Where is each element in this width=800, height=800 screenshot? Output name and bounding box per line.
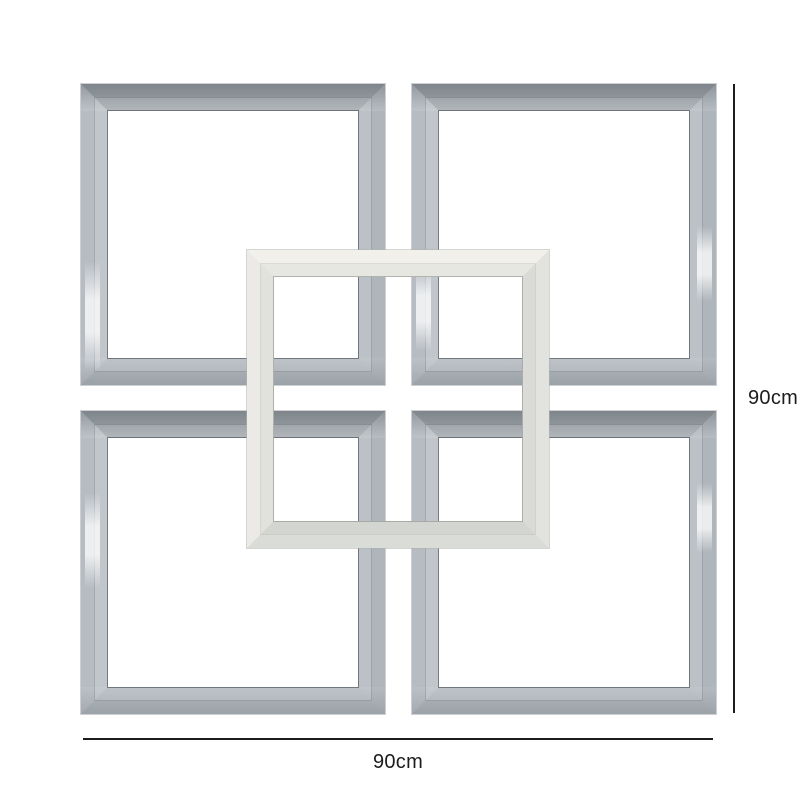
mirror-bevel	[261, 264, 535, 534]
reflection-streak	[85, 493, 100, 588]
product-image: 90cm 90cm	[0, 0, 800, 800]
width-dimension-line	[83, 738, 713, 740]
reflection-streak	[697, 483, 712, 553]
mirror-frame-center	[247, 250, 549, 548]
height-dimension-label: 90cm	[748, 387, 798, 410]
mirror-reflection-shade	[81, 84, 385, 111]
mirror-reflection-shade	[412, 687, 716, 714]
mirror-reflection-shade	[81, 687, 385, 714]
reflection-streak	[85, 261, 100, 371]
mirror-inner-edge	[273, 276, 523, 522]
mirror-reflection-shade	[412, 84, 716, 111]
reflection-streak	[697, 226, 712, 301]
height-dimension-line	[733, 84, 735, 713]
width-dimension-label: 90cm	[348, 751, 448, 774]
